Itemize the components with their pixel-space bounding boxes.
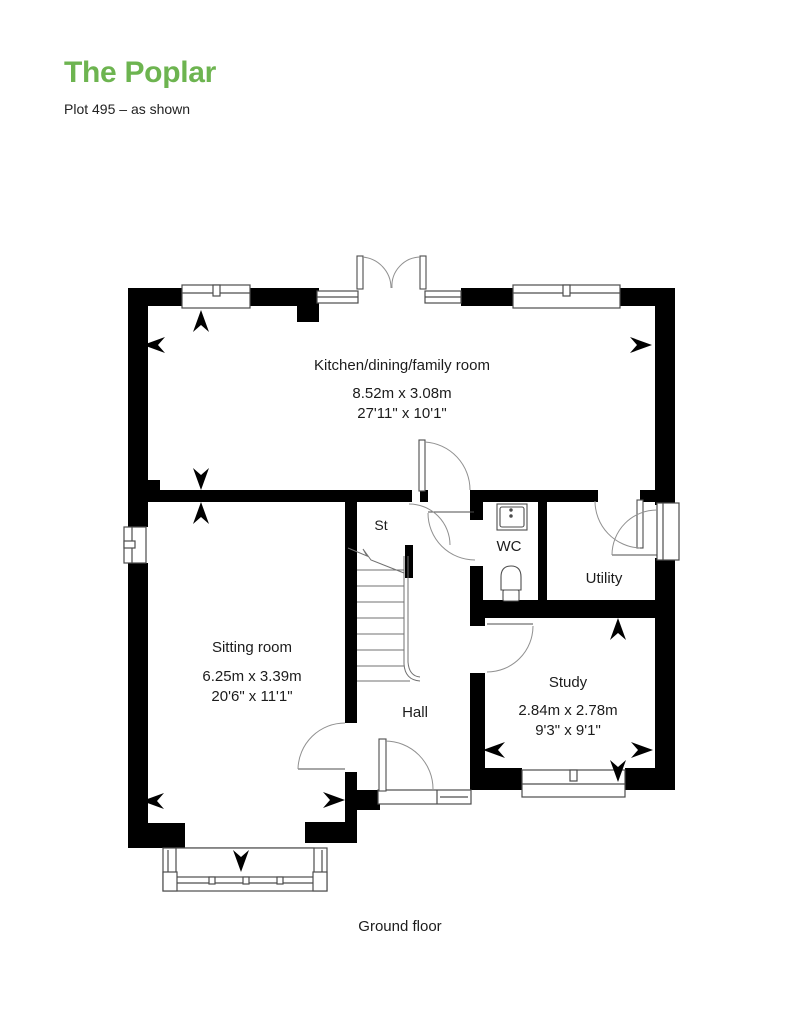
windows	[124, 285, 679, 891]
arrow-study-left	[483, 742, 505, 758]
label-sitting-room: Sitting room	[212, 639, 292, 656]
arrow-study-right	[631, 742, 653, 758]
utility-door-arc	[595, 501, 640, 548]
window-sitting-west	[124, 527, 146, 563]
arrow-kitchen-bottom	[193, 468, 209, 490]
sink	[497, 504, 527, 530]
label-store: St	[374, 517, 387, 533]
front-door-leaf	[379, 739, 386, 791]
window-sidelight-right	[425, 291, 461, 303]
french-door-leaf-right	[420, 256, 426, 289]
sitting-door-arc	[298, 723, 345, 769]
dim-study-imperial: 9'3" x 9'1"	[535, 722, 601, 739]
front-door-arc	[385, 741, 433, 789]
toilet	[501, 566, 521, 601]
front-door-frame	[378, 790, 471, 804]
window-kitchen-right	[513, 285, 620, 308]
label-hall: Hall	[402, 704, 428, 721]
label-utility: Utility	[586, 570, 623, 587]
study-door-arc	[487, 626, 533, 672]
floor-plan: Kitchen/dining/family room 8.52m x 3.08m…	[0, 0, 800, 1036]
floorplan-page: The Poplar Plot 495 – as shown	[0, 0, 800, 1036]
arrow-sitting-right	[323, 792, 345, 808]
window-kitchen-left	[182, 285, 250, 308]
french-door-arc-left	[362, 257, 391, 288]
label-wc: WC	[497, 538, 522, 555]
back-door-arc	[612, 510, 657, 555]
back-door-frame	[657, 503, 679, 560]
arrow-study-top	[610, 618, 626, 640]
dim-study-metric: 2.84m x 2.78m	[518, 702, 617, 719]
label-study: Study	[549, 674, 588, 691]
french-door-arc-right	[392, 257, 421, 288]
french-door-leaf-left	[357, 256, 363, 289]
window-study	[522, 770, 625, 797]
arrow-kitchen-right	[630, 337, 652, 353]
dim-kitchen-imperial: 27'11" x 10'1"	[357, 405, 447, 422]
label-kitchen: Kitchen/dining/family room	[314, 357, 490, 374]
arrow-kitchen-top	[193, 310, 209, 332]
arrow-sitting-top	[193, 502, 209, 524]
floor-caption: Ground floor	[358, 918, 441, 935]
dim-sitting-metric: 6.25m x 3.39m	[202, 668, 301, 685]
kitchen-door-arc	[425, 442, 470, 490]
wc-door-arc	[428, 513, 475, 560]
dim-kitchen-metric: 8.52m x 3.08m	[352, 385, 451, 402]
utility-door-leaf	[637, 500, 643, 548]
kitchen-door-leaf	[419, 440, 425, 491]
window-sidelight-left	[317, 291, 358, 303]
dim-sitting-imperial: 20'6" x 11'1"	[211, 688, 292, 705]
